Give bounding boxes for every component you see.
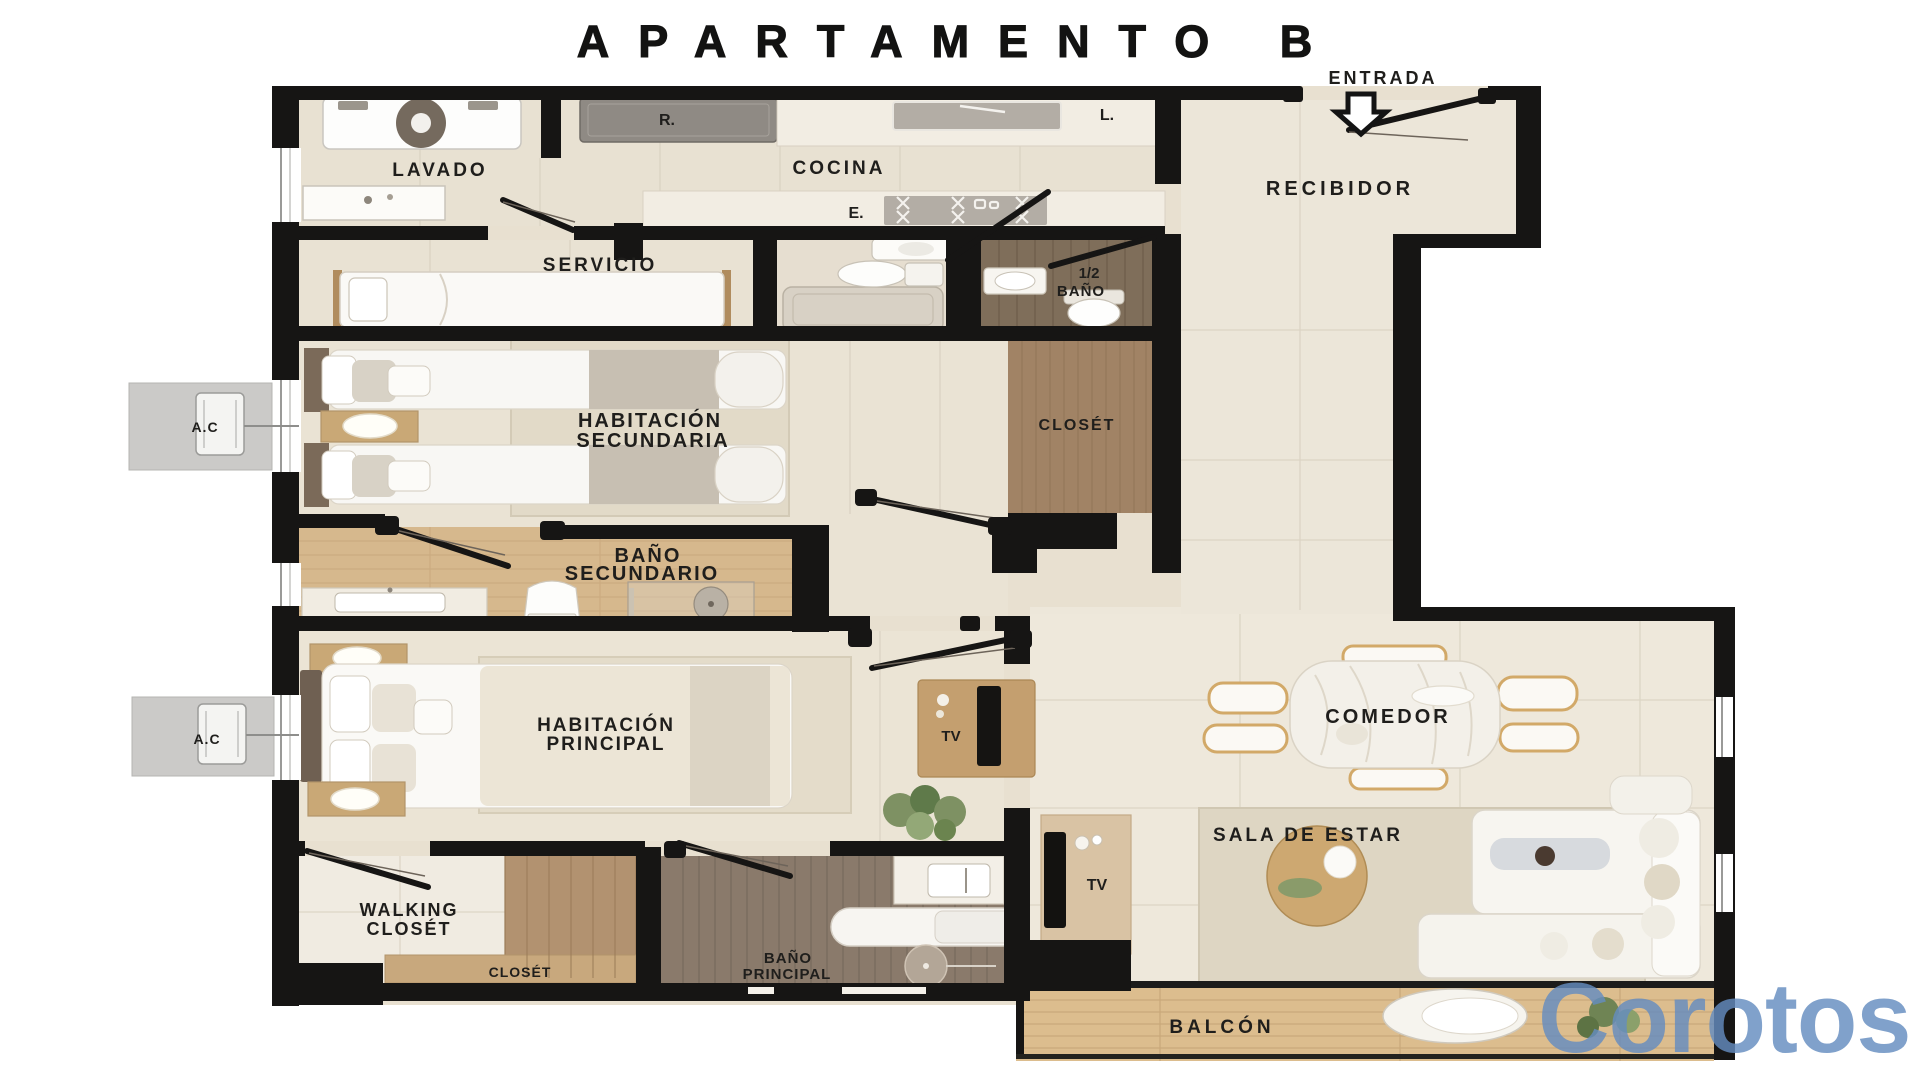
svg-text:SECUNDARIA: SECUNDARIA — [576, 430, 729, 452]
svg-text:1/2: 1/2 — [1079, 265, 1100, 282]
svg-text:ENTRADA: ENTRADA — [1329, 68, 1438, 88]
svg-text:CLOSÉT: CLOSÉT — [1039, 415, 1116, 434]
svg-text:COCINA: COCINA — [793, 158, 886, 179]
svg-text:PRINCIPAL: PRINCIPAL — [743, 966, 832, 983]
svg-text:HABITACIÓN: HABITACIÓN — [578, 408, 722, 432]
svg-text:TV: TV — [1087, 877, 1108, 894]
svg-text:PRINCIPAL: PRINCIPAL — [547, 734, 666, 755]
svg-text:SECUNDARIO: SECUNDARIO — [565, 563, 719, 585]
svg-text:CLOSÉT: CLOSÉT — [366, 918, 451, 939]
svg-text:BAÑO: BAÑO — [764, 949, 812, 967]
svg-text:BALCÓN: BALCÓN — [1169, 1016, 1274, 1038]
svg-text:E.: E. — [848, 205, 863, 222]
svg-text:HABITACIÓN: HABITACIÓN — [537, 714, 675, 736]
svg-text:CLOSÉT: CLOSÉT — [489, 964, 552, 980]
svg-text:R.: R. — [659, 112, 675, 129]
svg-text:WALKING: WALKING — [360, 900, 459, 920]
svg-text:Corotos: Corotos — [1538, 962, 1910, 1073]
svg-text:COMEDOR: COMEDOR — [1325, 706, 1450, 728]
svg-text:TV: TV — [941, 728, 960, 745]
svg-text:APARTAMENTO B: APARTAMENTO B — [577, 16, 1342, 67]
svg-text:BAÑO: BAÑO — [1057, 282, 1105, 300]
svg-text:A.C: A.C — [193, 731, 220, 747]
svg-text:RECIBIDOR: RECIBIDOR — [1266, 178, 1414, 200]
svg-text:SERVICIO: SERVICIO — [543, 255, 657, 276]
svg-text:LAVADO: LAVADO — [392, 160, 487, 181]
svg-text:A.C: A.C — [191, 419, 218, 435]
svg-text:SALA DE ESTAR: SALA DE ESTAR — [1213, 825, 1403, 846]
svg-text:L.: L. — [1100, 107, 1114, 124]
